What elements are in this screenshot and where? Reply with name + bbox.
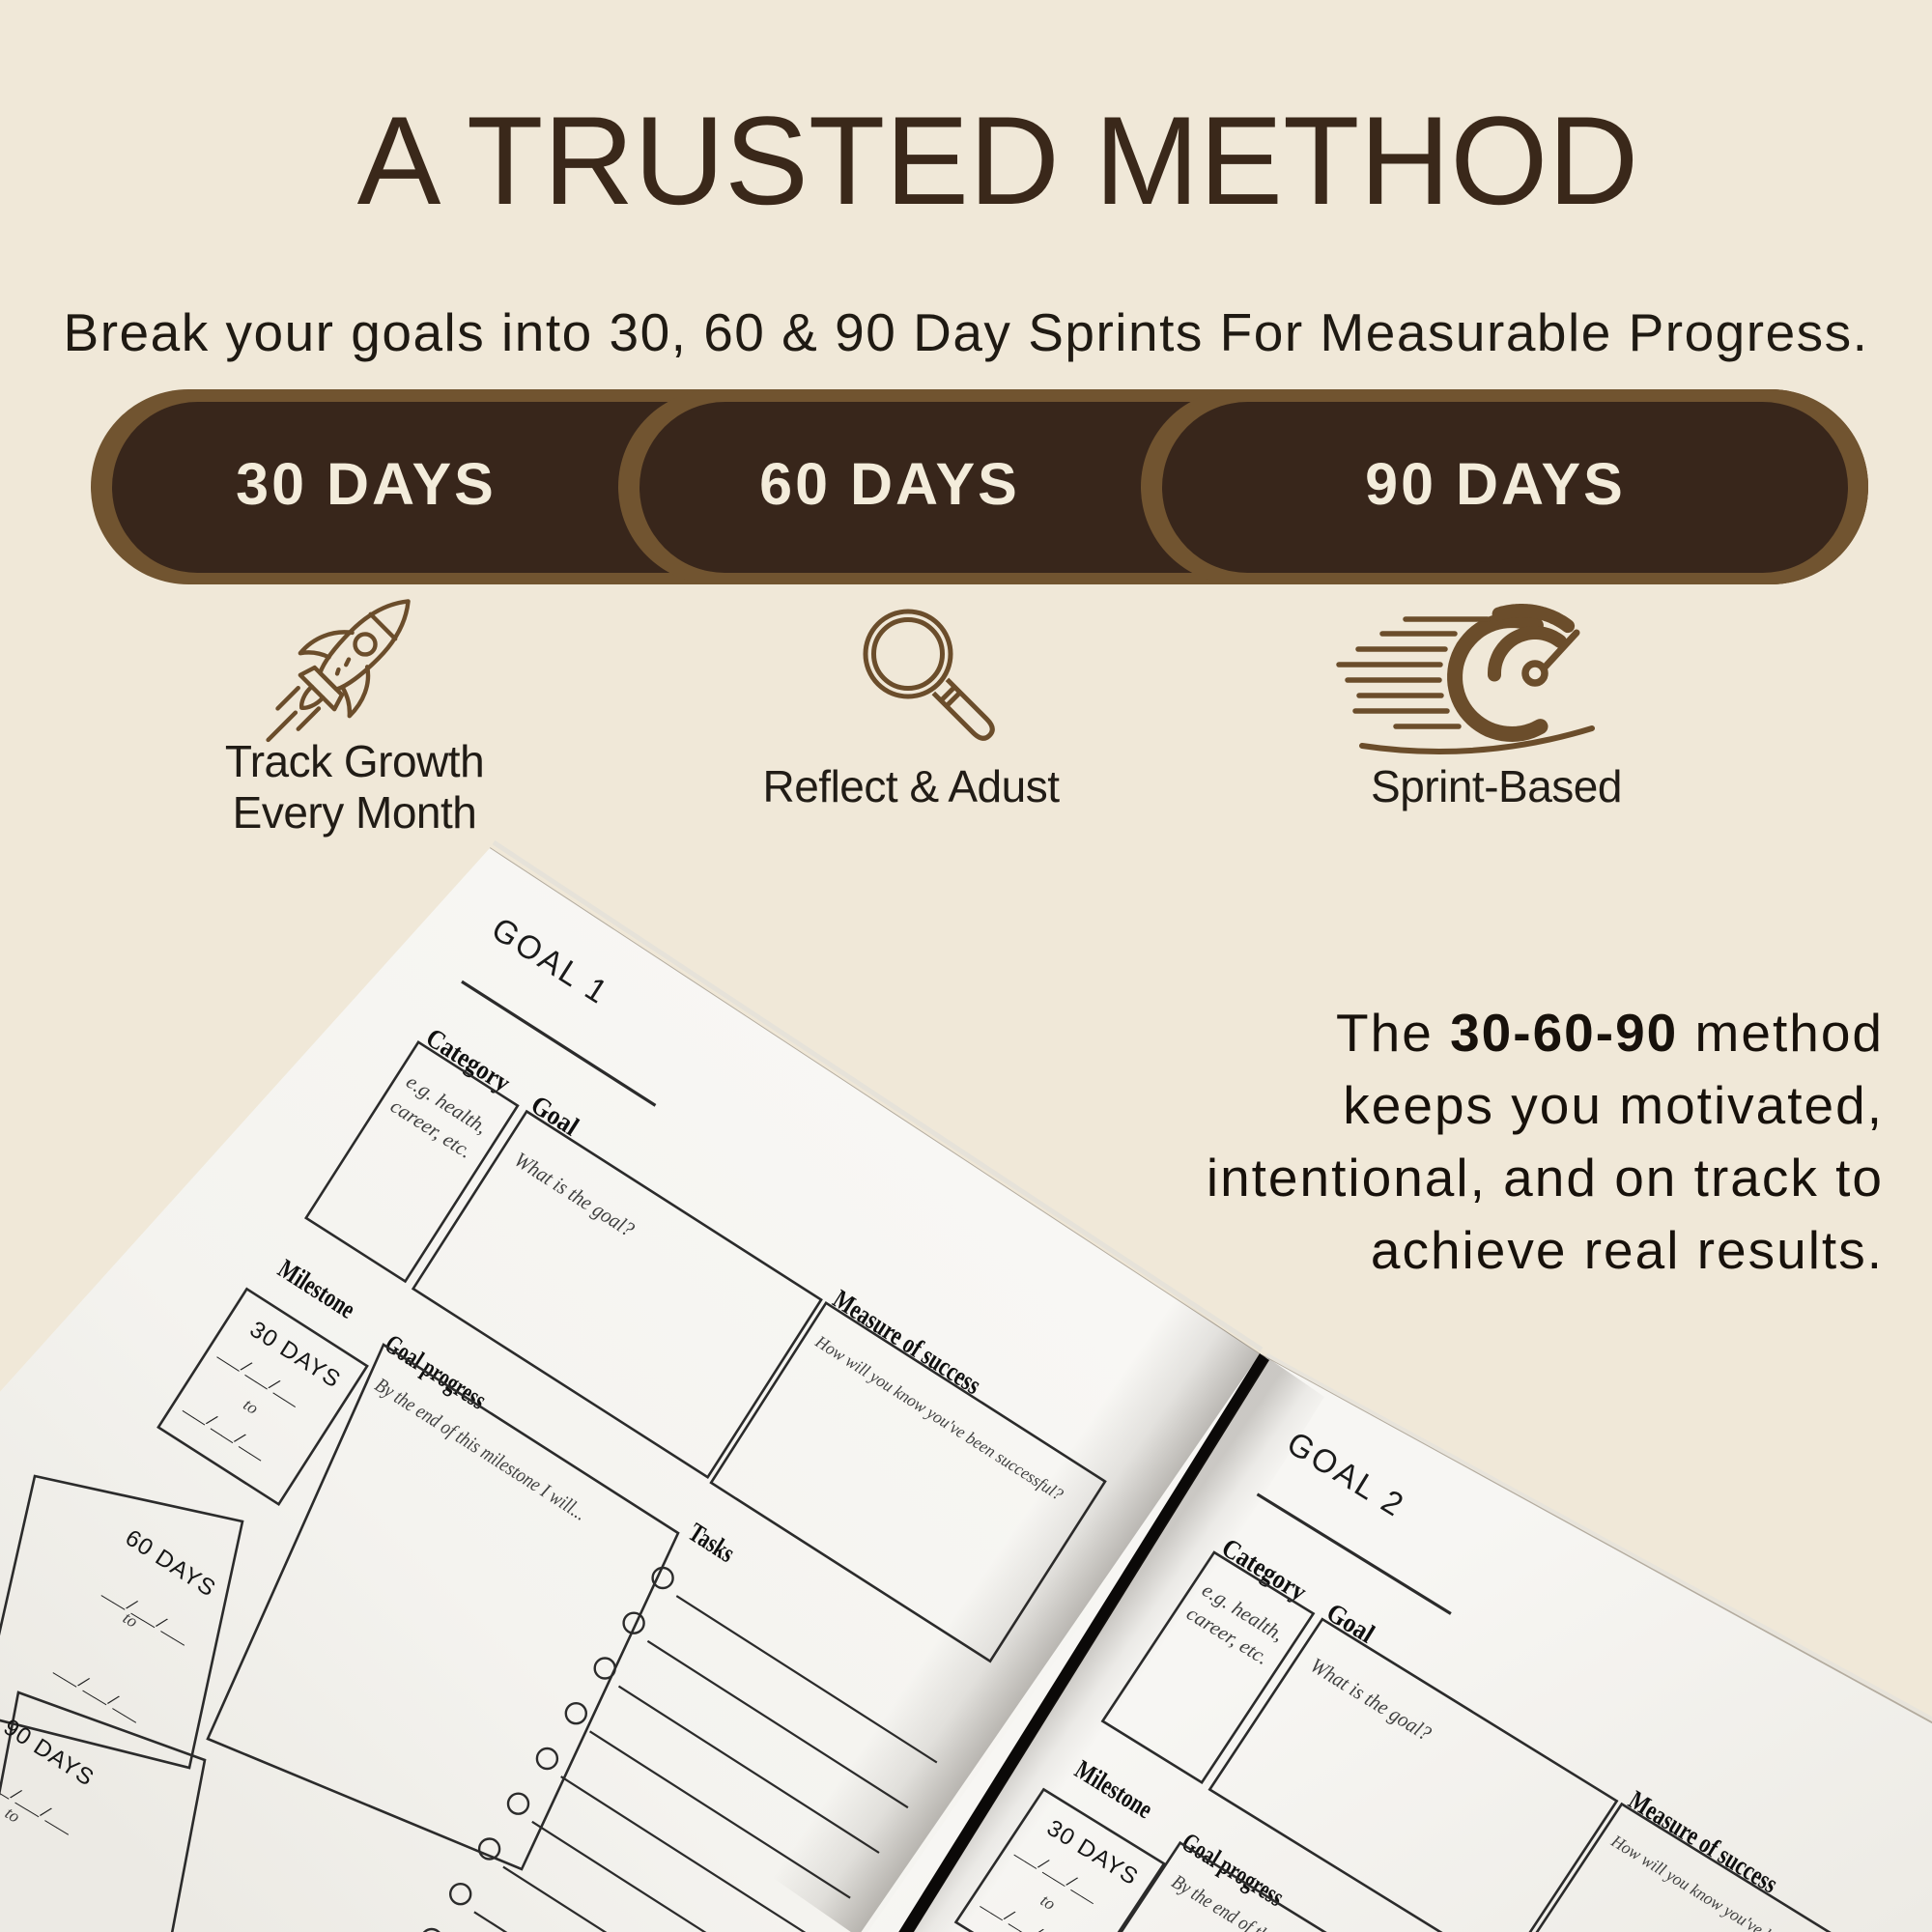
svg-text:90 DAYS: 90 DAYS	[1365, 451, 1626, 517]
svg-text:30 DAYS: 30 DAYS	[236, 451, 497, 517]
svg-text:60 DAYS: 60 DAYS	[759, 451, 1020, 517]
